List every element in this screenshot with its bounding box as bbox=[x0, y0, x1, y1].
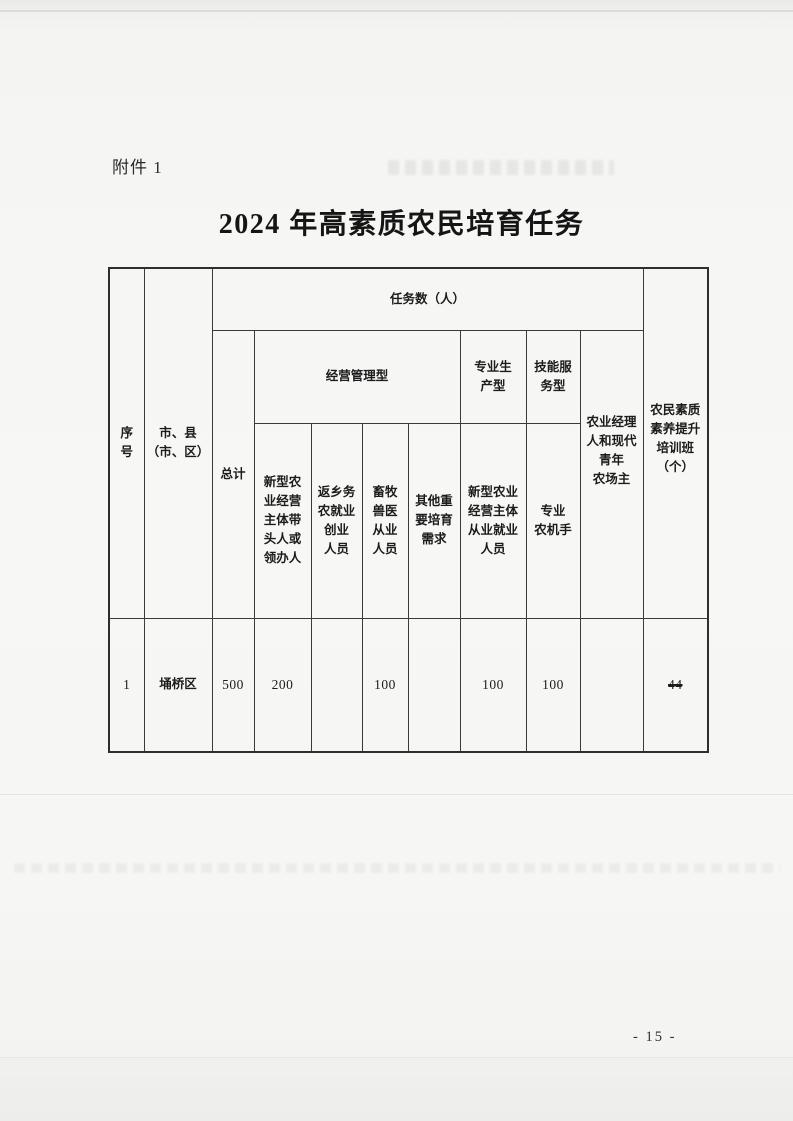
header-region: 市、县 （市、区） bbox=[144, 268, 212, 618]
ink-bleed-through-title-area bbox=[388, 160, 614, 175]
header-skill-sub: 专业 农机手 bbox=[526, 423, 580, 618]
ink-bleed-through-lower-area bbox=[14, 863, 780, 873]
header-tasks-group: 任务数（人） bbox=[212, 268, 643, 330]
scanned-document-page: 附件 1 2024 年高素质农民培育任务 序 号 市、县 （市、区） 任务数（人… bbox=[0, 0, 793, 1121]
document-title: 2024 年高素质农民培育任务 bbox=[0, 202, 793, 242]
cell-seq: 1 bbox=[109, 618, 144, 752]
scan-shade-bottom bbox=[0, 1058, 793, 1121]
table-row: 1 埇桥区 500 200 100 100 100 44 bbox=[109, 618, 708, 752]
cell-skill-sub: 100 bbox=[526, 618, 580, 752]
header-manager: 农业经理 人和现代 青年 农场主 bbox=[580, 330, 643, 618]
cell-quality-class: 44 bbox=[643, 618, 708, 752]
header-seq: 序 号 bbox=[109, 268, 144, 618]
header-quality-class: 农民素质 素养提升 培训班 （个） bbox=[643, 268, 708, 618]
header-mgmt-sub3: 畜牧 兽医 从业 人员 bbox=[362, 423, 408, 618]
header-skill-group: 技能服 务型 bbox=[526, 330, 580, 423]
header-prod-sub: 新型农业 经营主体 从业就业 人员 bbox=[460, 423, 526, 618]
header-row-1: 序 号 市、县 （市、区） 任务数（人） 农民素质 素养提升 培训班 （个） bbox=[109, 268, 708, 330]
cell-mgmt-sub2 bbox=[311, 618, 362, 752]
header-total: 总计 bbox=[212, 330, 254, 618]
cell-region: 埇桥区 bbox=[144, 618, 212, 752]
header-management-group: 经营管理型 bbox=[254, 330, 460, 423]
cell-mgmt-sub1: 200 bbox=[254, 618, 311, 752]
cell-mgmt-sub4 bbox=[408, 618, 460, 752]
scan-line-middle bbox=[0, 794, 793, 795]
attachment-label: 附件 1 bbox=[112, 153, 163, 178]
header-mgmt-sub2: 返乡务 农就业 创业 人员 bbox=[311, 423, 362, 618]
cell-prod-sub: 100 bbox=[460, 618, 526, 752]
cell-total: 500 bbox=[212, 618, 254, 752]
header-mgmt-sub1: 新型农 业经营 主体带 头人或 领办人 bbox=[254, 423, 311, 618]
header-mgmt-sub4: 其他重 要培育 需求 bbox=[408, 423, 460, 618]
farmer-training-task-table: 序 号 市、县 （市、区） 任务数（人） 农民素质 素养提升 培训班 （个） 总… bbox=[108, 267, 709, 753]
scan-edge-line-top bbox=[0, 10, 793, 12]
cell-manager bbox=[580, 618, 643, 752]
header-production-group: 专业生 产型 bbox=[460, 330, 526, 423]
cell-mgmt-sub3: 100 bbox=[362, 618, 408, 752]
page-number: - 15 - bbox=[633, 1029, 676, 1046]
